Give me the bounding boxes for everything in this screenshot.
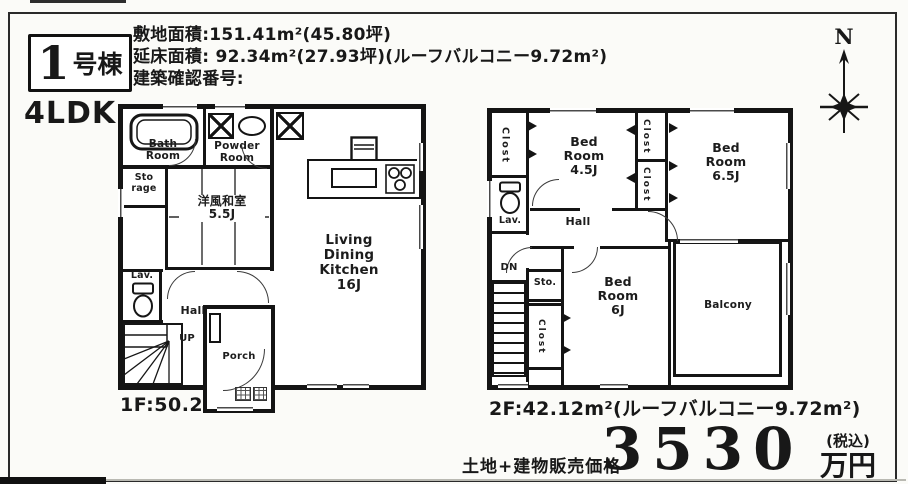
wall [270, 109, 274, 271]
wall [668, 239, 671, 385]
bedroom-65-label: Bed Room 6.5J [682, 141, 770, 183]
window-mark [498, 382, 528, 388]
window-mark [487, 181, 493, 217]
sliding-door-mark [680, 237, 738, 243]
wall [526, 113, 529, 235]
wall [165, 165, 168, 269]
stove-icon [385, 164, 415, 194]
closet-nw-label: Clost [499, 119, 510, 171]
compass-north-label: N [812, 24, 876, 49]
toilet-icon [498, 181, 522, 215]
window-mark [417, 143, 423, 171]
sink-icon [238, 116, 266, 136]
site-area-line: 敷地面積:151.41m²(45.80坪) [133, 25, 391, 47]
price-unit: 万円 [806, 451, 890, 480]
window-mark [118, 189, 124, 217]
layout-type: 4LDK [24, 96, 116, 131]
window-mark [784, 143, 790, 189]
window-mark [784, 263, 790, 315]
wall [492, 175, 528, 178]
closet-door-mark [626, 125, 635, 135]
window-mark [600, 382, 628, 388]
closet-door-mark [669, 161, 678, 171]
wall [529, 367, 561, 370]
closet-c2-label: Clost [641, 164, 651, 206]
compass: N [812, 24, 876, 139]
door-arc [167, 271, 195, 299]
kitchen-sink-icon [331, 168, 377, 188]
balcony: Balcony [673, 241, 782, 377]
door-arc [532, 179, 559, 206]
entry-door-mark [217, 405, 253, 411]
porch: Porch [203, 305, 275, 413]
sto-label: Sto. [531, 278, 559, 289]
wall [612, 208, 668, 211]
japanese-room-label: 洋風和室 5.5J [179, 195, 265, 222]
compass-star-icon [812, 49, 876, 135]
wall [530, 208, 580, 211]
wall [159, 269, 162, 322]
up-label: UP [169, 333, 205, 344]
window-mark [343, 382, 369, 388]
price-amount: 3530 [602, 420, 803, 478]
door-arc [648, 211, 678, 241]
building-number-box: 1 号棟 [28, 34, 132, 92]
door-arc [572, 247, 598, 273]
lav-label: Lav. [494, 216, 526, 227]
lav-label: Lav. [125, 271, 159, 282]
price-tax-note: (税込) [806, 430, 890, 451]
closet-sw-label: Clost [536, 313, 546, 361]
porch-label: Porch [209, 351, 269, 362]
window-mark [417, 205, 423, 249]
ldk-label: Living Dining Kitchen 16J [301, 233, 397, 293]
closet-door-mark [669, 123, 678, 133]
wall [635, 159, 665, 162]
kitchen-counter [307, 159, 421, 199]
balcony-label: Balcony [690, 300, 766, 312]
wall [529, 269, 561, 272]
closet-door-mark [528, 149, 537, 159]
hall-label: Hall [556, 216, 600, 228]
closet-door-mark [528, 121, 537, 131]
bottom-black-strip [0, 477, 106, 484]
wall [529, 299, 561, 302]
wall [600, 246, 670, 249]
closet-door-mark [626, 173, 635, 183]
stairs-down-icon [492, 280, 526, 377]
floorplan-flyer: { "building": { "number": "1", "suffix":… [0, 0, 908, 484]
window-mark [163, 104, 197, 110]
building-suffix: 号棟 [73, 45, 123, 81]
wall [165, 267, 273, 270]
dn-label: DN [496, 262, 522, 273]
toilet-icon [131, 282, 155, 318]
door-arc [237, 271, 269, 303]
window-mark [550, 108, 596, 114]
window-mark [215, 104, 245, 110]
building-number: 1 [37, 40, 69, 86]
bedroom-6-label: Bed Room 6J [570, 275, 666, 317]
confirmation-number-line: 建築確認番号: [133, 69, 244, 91]
bedroom-45-label: Bed Room 4.5J [544, 135, 624, 177]
wall [203, 109, 206, 167]
washing-pan-icon [276, 112, 304, 140]
wall [492, 231, 528, 234]
floor1-plan: Bath Room Powder Room Living Dining Kitc… [118, 104, 426, 390]
window-mark [307, 382, 337, 388]
floor-area-line: 延床面積: 92.34m²(27.93坪)(ルーフバルコニー9.72m²) [133, 47, 607, 69]
scan-artifact-line [30, 0, 126, 3]
closet-door-mark [669, 193, 678, 203]
entry-tile-hatch [235, 387, 251, 401]
wall [530, 246, 574, 249]
closet-c1-label: Clost [641, 118, 651, 156]
floor2-plan: Clost Lav. DN Bed Room 4.5J Clost Clost … [487, 108, 793, 390]
wall [529, 303, 561, 306]
window-mark [690, 108, 734, 114]
price-label: 土地+建物販売価格 [462, 452, 621, 477]
shoe-cabinet [209, 313, 221, 343]
price-unit-block: (税込) 万円 [806, 430, 890, 480]
storage-label: Sto rage [123, 173, 165, 194]
wall [123, 205, 168, 208]
entry-tile-hatch [253, 387, 267, 401]
washing-machine-icon [208, 113, 234, 139]
closet-door-mark [562, 345, 571, 355]
